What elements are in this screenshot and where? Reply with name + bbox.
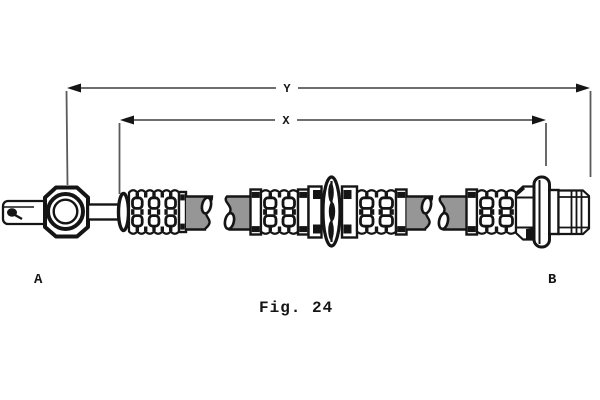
svg-text:A: A [34,272,43,288]
svg-text:B: B [548,272,557,288]
svg-text:Fig. 24: Fig. 24 [259,299,333,317]
svg-text:Y: Y [283,82,291,96]
svg-text:X: X [282,114,290,128]
